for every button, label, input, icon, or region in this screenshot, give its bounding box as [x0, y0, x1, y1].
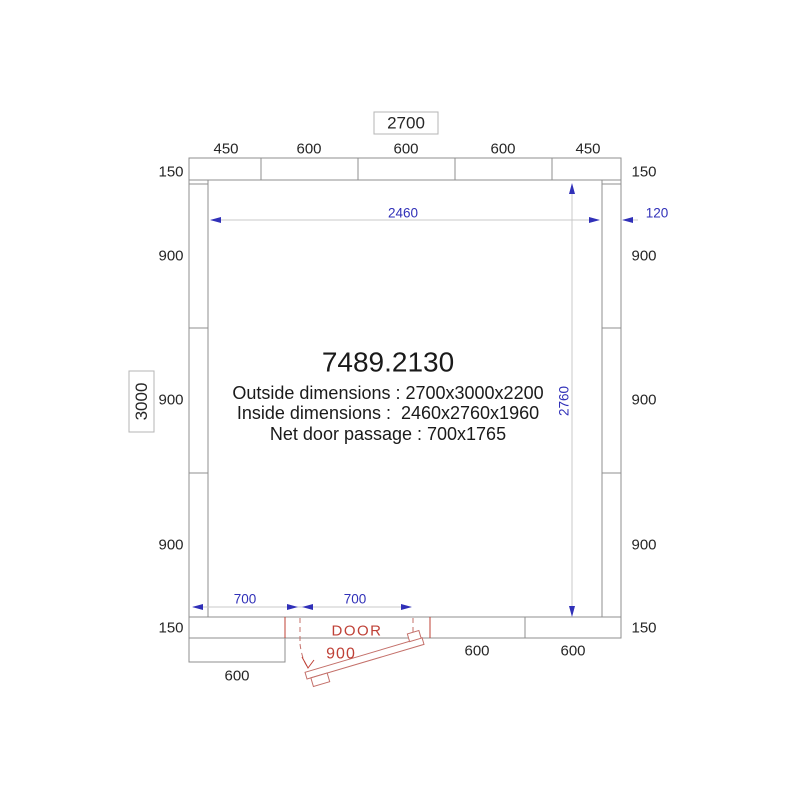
bottom-panel-label-1: 600 [464, 643, 489, 660]
inner-depth-label: 2760 [557, 386, 572, 416]
left-panel-label-3: 900 [158, 537, 183, 554]
wall-thickness-label: 120 [646, 206, 669, 221]
right-panel-label-2: 900 [631, 392, 656, 409]
top-panel-label-4: 450 [575, 141, 600, 158]
left-panel-labels: 150 900 900 900 150 [158, 164, 183, 637]
top-panel-labels: 450 600 600 600 450 [213, 141, 600, 158]
floor-plan-drawing: 2700 3000 450 600 600 600 450 150 900 90… [0, 0, 800, 800]
product-code: 7489.2130 [322, 347, 454, 378]
door-frame-width-label: 900 [326, 646, 356, 663]
top-panel-label-2: 600 [393, 141, 418, 158]
right-panel-labels: 150 900 900 900 150 [631, 164, 656, 637]
arrow-left-icon [192, 604, 203, 610]
left-panel-label-4: 150 [158, 620, 183, 637]
door-assembly: DOOR 900 [285, 617, 430, 688]
left-panel-label-1: 900 [158, 248, 183, 265]
cold-room-plan-page: 2700 3000 450 600 600 600 450 150 900 90… [0, 0, 800, 800]
bottom-left-panel-rect [189, 638, 285, 662]
door-position-dims: 700 700 [192, 592, 412, 611]
arrow-down-icon [569, 606, 575, 617]
arrow-up-icon [569, 183, 575, 194]
arrow-left-icon [302, 604, 313, 610]
inside-dimensions-text: Inside dimensions : 2460x2760x1960 [237, 403, 539, 423]
left-panel-label-2: 900 [158, 392, 183, 409]
right-panel-label-0: 150 [631, 164, 656, 181]
overall-width-dim: 2700 [374, 112, 438, 134]
bottom-panel-label-2: 600 [560, 643, 585, 660]
door-offset-label: 700 [234, 592, 257, 607]
bottom-panel-label-0: 600 [224, 668, 249, 685]
top-panel-label-3: 600 [490, 141, 515, 158]
door-swing-arc [300, 644, 307, 666]
inner-width-dim: 2460 [210, 206, 600, 224]
door-leaf-panel [305, 638, 424, 679]
arrow-left-icon [622, 217, 633, 223]
title-block: 7489.2130 Outside dimensions : 2700x3000… [232, 347, 543, 445]
arrow-right-icon [287, 604, 298, 610]
top-panel-label-0: 450 [213, 141, 238, 158]
overall-depth-label: 3000 [132, 383, 151, 421]
right-panel-label-3: 900 [631, 537, 656, 554]
door-passage-label: 700 [344, 592, 367, 607]
overall-width-label: 2700 [387, 114, 425, 133]
right-panel-label-1: 900 [631, 248, 656, 265]
overall-depth-dim: 3000 [129, 371, 154, 432]
wall-thickness-dim: 120 [622, 206, 668, 224]
outside-dimensions-text: Outside dimensions : 2700x3000x2200 [232, 383, 543, 403]
arrow-right-icon [589, 217, 600, 223]
right-panel-label-4: 150 [631, 620, 656, 637]
left-panel-label-0: 150 [158, 164, 183, 181]
inner-depth-dim: 2760 [557, 183, 576, 617]
arrow-left-icon [210, 217, 221, 223]
top-panel-label-1: 600 [296, 141, 321, 158]
door-swing-arrow-icon [302, 657, 314, 668]
net-door-passage-text: Net door passage : 700x1765 [270, 424, 506, 444]
door-label: DOOR [332, 623, 383, 640]
inner-width-label: 2460 [388, 206, 418, 221]
arrow-right-icon [401, 604, 412, 610]
